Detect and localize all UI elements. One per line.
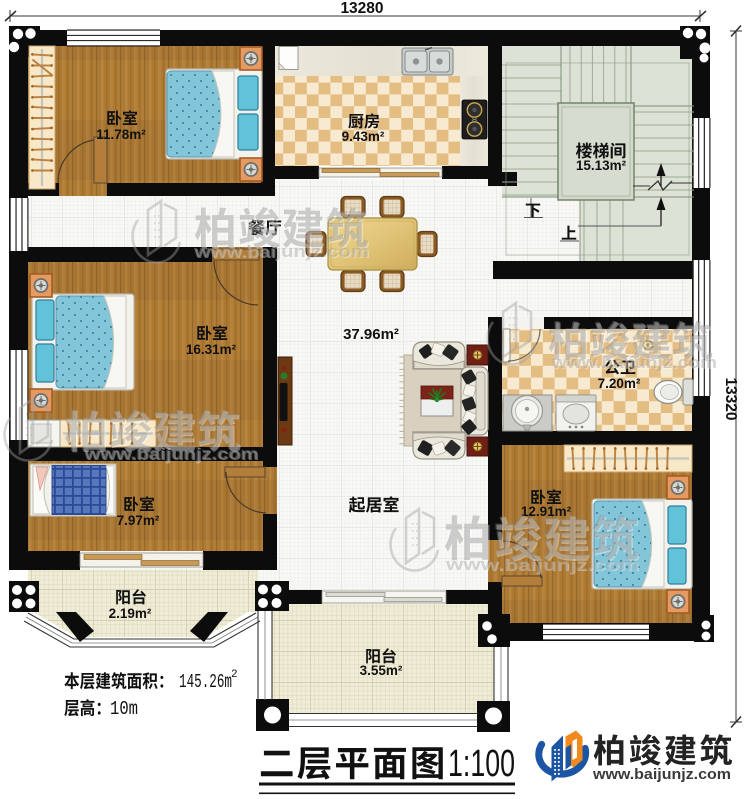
svg-text:www.baijunjz.com: www.baijunjz.com xyxy=(592,767,731,783)
svg-text:www.baijunjz.com: www.baijunjz.com xyxy=(193,242,369,261)
svg-text:www.baijunjz.com: www.baijunjz.com xyxy=(551,353,717,372)
svg-text:13320: 13320 xyxy=(722,377,739,420)
svg-text:3.55m²: 3.55m² xyxy=(360,663,403,678)
svg-text:12.91m²: 12.91m² xyxy=(521,504,572,519)
svg-text:9.43m²: 9.43m² xyxy=(342,129,385,144)
svg-text:www.baijunjz.com: www.baijunjz.com xyxy=(445,555,639,574)
svg-text:2.19m²: 2.19m² xyxy=(109,606,152,621)
svg-text:1:100: 1:100 xyxy=(448,743,515,785)
svg-text:10m: 10m xyxy=(110,698,138,720)
svg-text:15.13m²: 15.13m² xyxy=(576,158,627,173)
svg-text:13280: 13280 xyxy=(340,0,383,17)
svg-text:16.31m²: 16.31m² xyxy=(186,342,237,357)
svg-text:7.97m²: 7.97m² xyxy=(117,513,160,528)
svg-text:www.baijunjz.com: www.baijunjz.com xyxy=(83,444,258,463)
svg-text:37.96m²: 37.96m² xyxy=(343,326,399,343)
svg-text:11.78m²: 11.78m² xyxy=(96,127,146,142)
svg-text:7.20m²: 7.20m² xyxy=(598,376,641,391)
svg-text:145.26m: 145.26m xyxy=(179,671,232,693)
svg-text:2: 2 xyxy=(231,669,238,681)
